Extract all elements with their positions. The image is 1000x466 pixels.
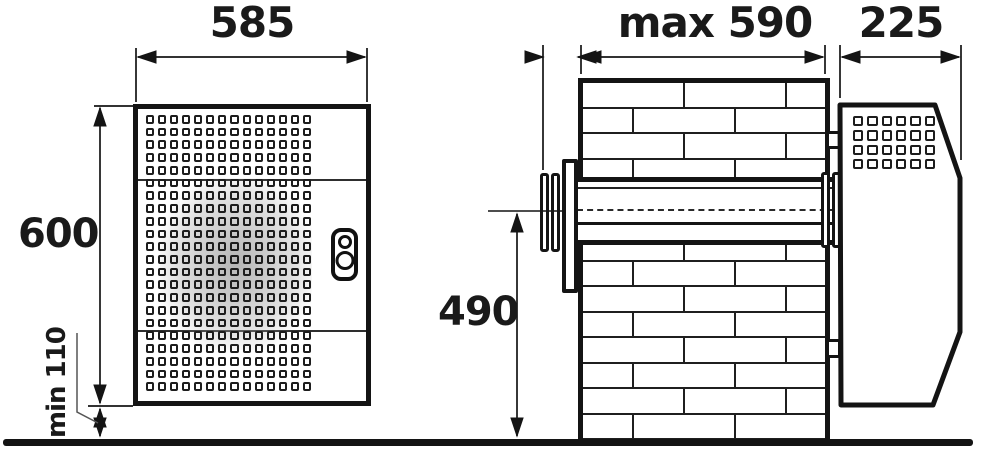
grille-hole [158, 344, 166, 353]
grille-hole [158, 382, 166, 391]
brick [736, 364, 825, 388]
grille-hole [194, 344, 202, 353]
grille-hole [230, 344, 238, 353]
brick [583, 415, 634, 439]
grille-hole [243, 319, 251, 328]
grille-hole [230, 128, 238, 137]
grille-hole [279, 280, 287, 289]
grille-hole [158, 370, 166, 379]
grille-hole [170, 230, 178, 239]
grille-hole [218, 179, 226, 188]
grille-hole [170, 242, 178, 251]
grille-hole [182, 204, 190, 213]
grille-hole [194, 128, 202, 137]
dim-label-floor-clearance: min 110 [40, 322, 74, 438]
brick [634, 262, 736, 286]
grille-hole [218, 268, 226, 277]
grille-hole [146, 140, 154, 149]
grille-hole [182, 293, 190, 302]
grille-hole [882, 116, 892, 126]
wall-flange-plate [562, 159, 578, 293]
grille-hole [279, 179, 287, 188]
grille-hole [146, 179, 154, 188]
grille-hole [255, 344, 263, 353]
grille-hole [267, 140, 275, 149]
grille-hole [194, 204, 202, 213]
grille-hole [243, 331, 251, 340]
grille-hole [291, 166, 299, 175]
grille-hole [218, 357, 226, 366]
brick [583, 338, 685, 362]
grille-hole [291, 191, 299, 200]
grille-hole [194, 230, 202, 239]
grille-hole [230, 319, 238, 328]
grille-hole [170, 140, 178, 149]
grille-hole [170, 217, 178, 226]
duct-collar-bar [821, 172, 830, 248]
grille-hole [243, 128, 251, 137]
brick [685, 389, 787, 413]
grille-hole [194, 331, 202, 340]
grille-hole [194, 370, 202, 379]
grille-hole [267, 280, 275, 289]
grille-hole [230, 230, 238, 239]
grille-hole [279, 344, 287, 353]
grille-hole [243, 280, 251, 289]
brick [583, 287, 685, 311]
grille-hole [230, 306, 238, 315]
grille-hole [146, 293, 154, 302]
grille-hole [925, 130, 935, 140]
grille-hole [146, 331, 154, 340]
grille-hole [182, 230, 190, 239]
grille-hole [255, 268, 263, 277]
grille-hole [146, 166, 154, 175]
grille-hole [170, 153, 178, 162]
grille-hole [291, 319, 299, 328]
grille-hole [867, 159, 877, 169]
grille-hole [303, 331, 311, 340]
brick-course [583, 313, 825, 339]
grille-hole [194, 357, 202, 366]
brick [634, 364, 736, 388]
brick [583, 313, 634, 337]
grille-hole [146, 382, 154, 391]
grille-hole [158, 166, 166, 175]
grille-hole [230, 217, 238, 226]
grille-hole [267, 293, 275, 302]
grille-hole [255, 370, 263, 379]
grille-hole [170, 357, 178, 366]
grille-hole [291, 331, 299, 340]
grille-hole [910, 145, 920, 155]
dim-label-wall-thickness: max 590 [590, 2, 840, 44]
duct-collar-bar [551, 173, 560, 252]
brick [583, 134, 685, 158]
grille-hole [194, 306, 202, 315]
grille-hole [158, 179, 166, 188]
grille-hole [255, 331, 263, 340]
grille-hole [206, 230, 214, 239]
knob-ring [335, 251, 354, 270]
grille-hole [194, 255, 202, 264]
grille-hole [206, 293, 214, 302]
grille-hole [267, 204, 275, 213]
grille-hole [170, 306, 178, 315]
brick [685, 287, 787, 311]
grille-hole [218, 331, 226, 340]
grille-hole [182, 153, 190, 162]
grille-hole [182, 191, 190, 200]
grille-hole [303, 268, 311, 277]
grille-hole [218, 306, 226, 315]
grille-hole [303, 344, 311, 353]
grille-hole [267, 217, 275, 226]
grille-hole [182, 166, 190, 175]
grille-hole [291, 382, 299, 391]
grille-hole [291, 344, 299, 353]
brick [583, 364, 634, 388]
grille-hole [230, 382, 238, 391]
brick-wall-section [578, 78, 830, 440]
grille-hole [206, 166, 214, 175]
grille-hole [243, 191, 251, 200]
grille-hole [230, 140, 238, 149]
grille-hole [291, 306, 299, 315]
grille-hole [170, 319, 178, 328]
grille-hole [158, 268, 166, 277]
grille-hole [206, 319, 214, 328]
grille-hole [218, 242, 226, 251]
grille-hole [267, 344, 275, 353]
grille-hole [267, 255, 275, 264]
grille-hole [194, 166, 202, 175]
grille-hole [303, 204, 311, 213]
grille-hole [194, 382, 202, 391]
grille-hole [170, 128, 178, 137]
grille-hole [218, 230, 226, 239]
grille-hole [267, 382, 275, 391]
brick-course [583, 83, 825, 109]
grille-hole [243, 217, 251, 226]
grille-hole [158, 357, 166, 366]
grille-hole [170, 344, 178, 353]
grille-hole [255, 153, 263, 162]
grille-hole [243, 179, 251, 188]
grille-hole [291, 242, 299, 251]
grille-hole [206, 153, 214, 162]
grille-hole [182, 306, 190, 315]
grille-hole [303, 217, 311, 226]
grille-hole [279, 370, 287, 379]
brick [583, 109, 634, 133]
grille-hole [279, 293, 287, 302]
grille-hole [170, 370, 178, 379]
dim-label-axis-height: 490 [438, 292, 508, 332]
grille-hole [206, 280, 214, 289]
grille-hole [182, 319, 190, 328]
brick [787, 83, 825, 107]
grille-hole [158, 140, 166, 149]
grille-hole [279, 217, 287, 226]
grille-hole [291, 255, 299, 264]
brick-course [583, 338, 825, 364]
dim-label-front-height: 600 [18, 214, 99, 254]
grille-hole [243, 115, 251, 124]
grille-hole [291, 128, 299, 137]
grille-hole [146, 268, 154, 277]
grille-hole [279, 255, 287, 264]
grille-hole [218, 293, 226, 302]
grille-hole [158, 128, 166, 137]
grille-hole [218, 319, 226, 328]
grille-hole [218, 370, 226, 379]
grille-hole [867, 130, 877, 140]
grille-hole [146, 306, 154, 315]
grille-hole [230, 115, 238, 124]
grille-hole [291, 140, 299, 149]
grille-hole [243, 140, 251, 149]
brick [787, 134, 825, 158]
grille-hole [279, 191, 287, 200]
grille-hole [158, 255, 166, 264]
grille-hole [267, 319, 275, 328]
grille-hole [182, 344, 190, 353]
grille-hole [279, 230, 287, 239]
grille-hole [146, 319, 154, 328]
grille-hole [303, 115, 311, 124]
grille-hole [267, 306, 275, 315]
grille-hole [243, 242, 251, 251]
grille-hole [291, 357, 299, 366]
grille-hole [146, 242, 154, 251]
grille-hole [206, 242, 214, 251]
grille-hole [882, 130, 892, 140]
grille-hole [218, 153, 226, 162]
grille-hole [267, 230, 275, 239]
dim-label-front-width: 585 [133, 2, 371, 44]
grille-hole [279, 115, 287, 124]
grille-hole [853, 116, 863, 126]
grille-hole [182, 382, 190, 391]
brick-course [583, 134, 825, 160]
grille-hole [182, 370, 190, 379]
grille-hole [243, 382, 251, 391]
grille-hole [194, 242, 202, 251]
through-wall-duct [577, 177, 846, 245]
brick [685, 338, 787, 362]
grille-hole [146, 191, 154, 200]
grille-hole [267, 242, 275, 251]
grille-hole [206, 128, 214, 137]
grille-hole [230, 331, 238, 340]
grille-hole [146, 357, 154, 366]
grille-hole [243, 344, 251, 353]
grille-hole [182, 128, 190, 137]
grille-hole [303, 191, 311, 200]
grille-hole [218, 128, 226, 137]
outdoor-grille [853, 116, 935, 169]
floor-line [3, 439, 973, 446]
grille-hole [146, 344, 154, 353]
grille-hole [182, 115, 190, 124]
grille-hole [882, 159, 892, 169]
grille-hole [182, 357, 190, 366]
grille-hole [255, 319, 263, 328]
grille-hole [910, 116, 920, 126]
grille-hole [243, 357, 251, 366]
brick [583, 389, 685, 413]
grille-hole [303, 280, 311, 289]
grille-hole [279, 382, 287, 391]
grille-hole [230, 268, 238, 277]
grille-hole [867, 116, 877, 126]
grille-hole [255, 128, 263, 137]
grille-hole [230, 255, 238, 264]
grille-hole [291, 179, 299, 188]
grille-hole [218, 115, 226, 124]
grille-hole [910, 159, 920, 169]
brick-course [583, 109, 825, 135]
grille-hole [146, 370, 154, 379]
grille-hole [291, 280, 299, 289]
grille-hole [170, 280, 178, 289]
grille-hole [218, 140, 226, 149]
brick [583, 262, 634, 286]
grille-hole [255, 230, 263, 239]
grille-hole [896, 159, 906, 169]
grille-hole [146, 115, 154, 124]
grille-hole [182, 255, 190, 264]
grille-hole [206, 179, 214, 188]
grille-hole [279, 331, 287, 340]
grille-hole [255, 166, 263, 175]
grille-hole [230, 204, 238, 213]
grille-hole [291, 153, 299, 162]
brick-course [583, 415, 825, 441]
grille-hole [267, 191, 275, 200]
grille-hole [182, 242, 190, 251]
grille-hole [158, 331, 166, 340]
grille-hole [218, 217, 226, 226]
grille-hole [853, 130, 863, 140]
grille-hole [170, 179, 178, 188]
grille-hole [230, 242, 238, 251]
grille-hole [230, 370, 238, 379]
duct-inner-line [577, 187, 846, 189]
grille-hole [255, 382, 263, 391]
grille-hole [218, 166, 226, 175]
grille-hole [146, 255, 154, 264]
grille-hole [194, 268, 202, 277]
grille-hole [255, 179, 263, 188]
grille-hole [291, 370, 299, 379]
grille-hole [206, 344, 214, 353]
brick [787, 338, 825, 362]
brick [634, 313, 736, 337]
grille-hole [896, 145, 906, 155]
grille-hole [194, 179, 202, 188]
brick-course [583, 287, 825, 313]
grille-hole [230, 153, 238, 162]
grille-hole [303, 230, 311, 239]
grille-hole [267, 268, 275, 277]
brick [685, 83, 787, 107]
grille-hole [170, 268, 178, 277]
front-grille [146, 115, 311, 391]
grille-hole [279, 153, 287, 162]
grille-hole [267, 153, 275, 162]
grille-hole [267, 115, 275, 124]
grille-hole [170, 293, 178, 302]
grille-hole [279, 319, 287, 328]
grille-hole [218, 344, 226, 353]
grille-hole [255, 191, 263, 200]
grille-hole [255, 204, 263, 213]
grille-hole [206, 357, 214, 366]
grille-hole [158, 115, 166, 124]
grille-hole [218, 382, 226, 391]
grille-hole [206, 191, 214, 200]
grille-hole [206, 370, 214, 379]
grille-hole [206, 268, 214, 277]
grille-hole [303, 242, 311, 251]
grille-hole [255, 280, 263, 289]
grille-hole [255, 306, 263, 315]
grille-hole [194, 191, 202, 200]
grille-hole [158, 191, 166, 200]
grille-hole [303, 166, 311, 175]
grille-hole [158, 319, 166, 328]
grille-hole [243, 293, 251, 302]
grille-hole [243, 230, 251, 239]
grille-hole [206, 331, 214, 340]
grille-hole [146, 280, 154, 289]
grille-hole [925, 145, 935, 155]
leader-line [77, 333, 98, 423]
grille-hole [303, 319, 311, 328]
grille-hole [267, 179, 275, 188]
grille-hole [158, 280, 166, 289]
grille-hole [158, 217, 166, 226]
grille-hole [194, 217, 202, 226]
grille-hole [206, 306, 214, 315]
brick [787, 287, 825, 311]
grille-hole [206, 217, 214, 226]
thermostat-knob [331, 228, 358, 281]
dim-label-unit-depth: 225 [838, 2, 964, 44]
grille-hole [182, 217, 190, 226]
grille-hole [279, 140, 287, 149]
grille-hole [206, 204, 214, 213]
grille-hole [194, 293, 202, 302]
grille-hole [896, 116, 906, 126]
grille-hole [218, 191, 226, 200]
grille-hole [206, 255, 214, 264]
grille-hole [255, 357, 263, 366]
grille-hole [303, 179, 311, 188]
grille-hole [158, 306, 166, 315]
grille-hole [194, 280, 202, 289]
grille-hole [230, 357, 238, 366]
brick [634, 415, 736, 439]
brick [736, 109, 825, 133]
grille-hole [182, 280, 190, 289]
grille-hole [206, 382, 214, 391]
grille-hole [243, 255, 251, 264]
installation-dimension-drawing: 585 600 min 110 max 590 225 490 [0, 0, 1000, 466]
grille-hole [303, 153, 311, 162]
